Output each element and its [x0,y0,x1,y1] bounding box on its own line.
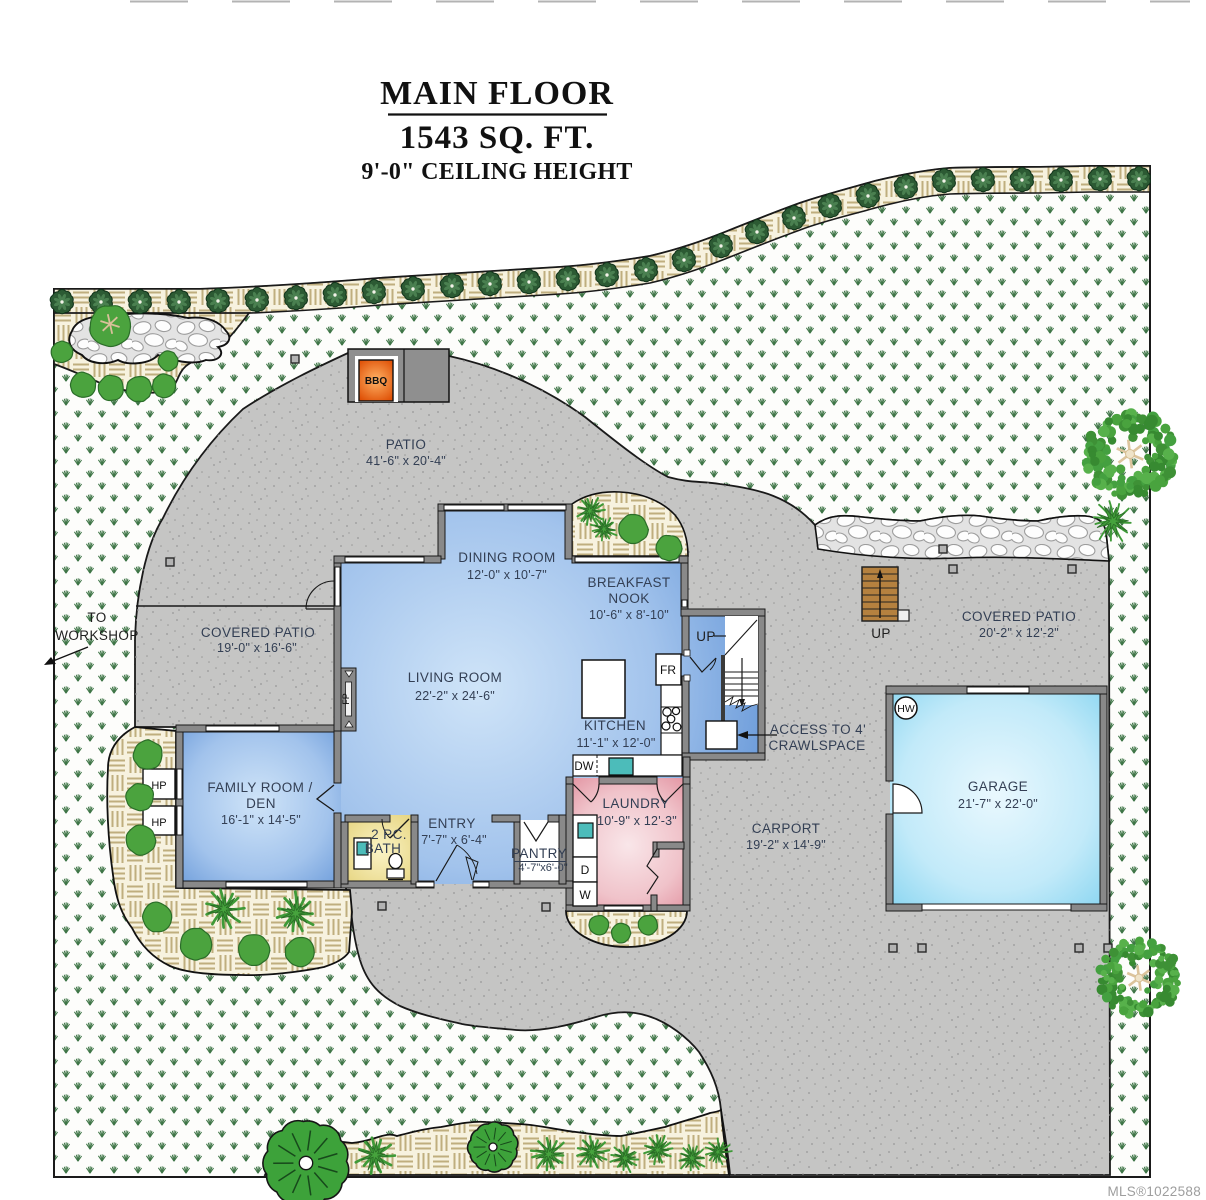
svg-text:NOOK: NOOK [608,591,649,606]
svg-text:TO: TO [87,610,106,625]
svg-text:ACCESS TO 4': ACCESS TO 4' [770,722,866,737]
svg-text:WORKSHOP: WORKSHOP [55,628,138,643]
svg-text:COVERED PATIO: COVERED PATIO [201,625,315,640]
svg-text:DW: DW [574,761,593,773]
svg-text:BBQ: BBQ [365,376,387,387]
svg-text:12'-0" x 10'-7": 12'-0" x 10'-7" [467,568,547,582]
svg-text:CRAWLSPACE: CRAWLSPACE [768,738,865,753]
svg-text:10'-6" x 8'-10": 10'-6" x 8'-10" [589,608,669,622]
svg-text:GARAGE: GARAGE [968,779,1028,794]
svg-text:PATIO: PATIO [386,437,427,452]
svg-text:BATH: BATH [365,841,402,856]
svg-text:LIVING ROOM: LIVING ROOM [408,670,502,685]
svg-text:16'-1" x 14'-5": 16'-1" x 14'-5" [221,813,301,827]
svg-text:41'-6" x 20'-4": 41'-6" x 20'-4" [366,454,446,468]
svg-text:KITCHEN: KITCHEN [584,718,646,733]
svg-text:HW: HW [897,703,915,715]
svg-text:ENTRY: ENTRY [428,816,476,831]
svg-text:1543 SQ. FT.: 1543 SQ. FT. [400,120,595,156]
svg-text:21'-7" x 22'-0": 21'-7" x 22'-0" [958,797,1038,811]
svg-text:HP: HP [151,780,166,792]
svg-text:7'-7" x 6'-4": 7'-7" x 6'-4" [421,833,487,847]
svg-text:CARPORT: CARPORT [752,821,821,836]
svg-text:COVERED PATIO: COVERED PATIO [962,609,1076,624]
svg-text:UP: UP [696,629,716,644]
svg-text:9'-0" CEILING HEIGHT: 9'-0" CEILING HEIGHT [361,159,632,185]
svg-text:LAUNDRY: LAUNDRY [602,796,669,811]
svg-text:22'-2" x 24'-6": 22'-2" x 24'-6" [415,689,495,703]
svg-text:DINING ROOM: DINING ROOM [458,550,555,565]
svg-text:4'-7"x6'-0": 4'-7"x6'-0" [518,862,567,874]
svg-text:PANTRY: PANTRY [511,846,567,861]
svg-text:FP: FP [341,693,351,705]
svg-text:FAMILY ROOM /: FAMILY ROOM / [207,780,312,795]
svg-text:19'-2" x 14'-9": 19'-2" x 14'-9" [746,838,826,852]
svg-text:10'-9" x 12'-3": 10'-9" x 12'-3" [597,814,677,828]
svg-text:11'-1" x 12'-0": 11'-1" x 12'-0" [577,736,656,750]
svg-text:W: W [579,888,591,902]
svg-text:20'-2" x 12'-2": 20'-2" x 12'-2" [979,626,1059,640]
svg-text:19'-0" x 16'-6": 19'-0" x 16'-6" [217,641,297,655]
svg-text:BREAKFAST: BREAKFAST [587,575,670,590]
svg-text:UP: UP [871,626,891,641]
svg-text:2 PC.: 2 PC. [371,827,407,842]
svg-text:DEN: DEN [246,796,276,811]
svg-text:D: D [581,863,590,877]
svg-text:HP: HP [151,817,166,829]
svg-text:FR: FR [660,663,676,677]
svg-text:MLS®1022588: MLS®1022588 [1107,1184,1201,1199]
svg-text:MAIN FLOOR: MAIN FLOOR [380,75,614,112]
